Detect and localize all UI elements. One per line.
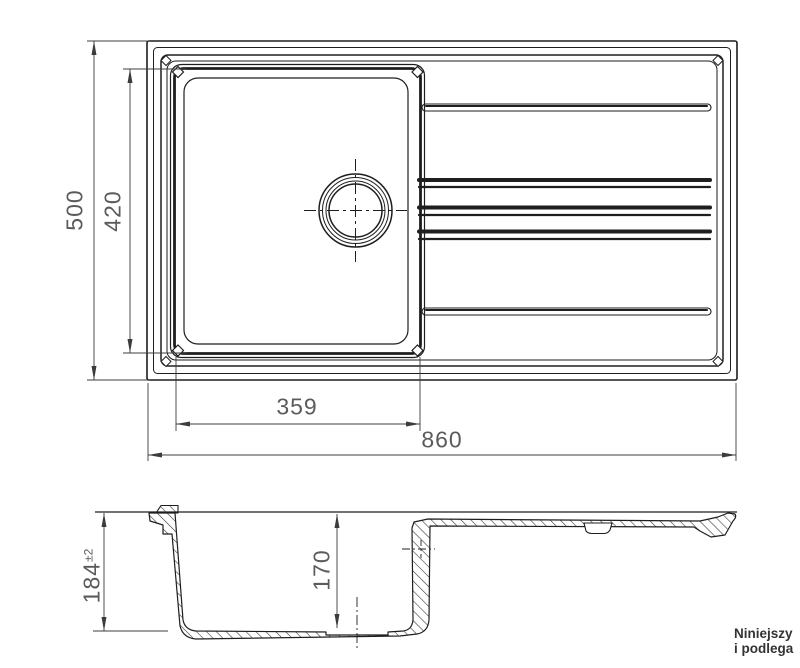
dim-359-arrow-left: [176, 422, 190, 427]
footer-note-line2: i podlega: [734, 641, 800, 656]
footer-note: Niniejszy i podlega: [734, 626, 800, 656]
dim-170-arrow-top: [335, 514, 340, 528]
dim-label-depth-total: 184±2: [81, 549, 104, 604]
dim-label-width-basin: 359: [276, 396, 317, 419]
drainer-grooves: [419, 104, 711, 315]
basin: [171, 65, 425, 358]
sink-technical-drawing-page: 500 420 359 860 184±2 170 Niniejszy i po…: [0, 0, 800, 668]
dim-500-arrow-bottom: [92, 366, 97, 380]
section-view: [95, 506, 737, 649]
dim-label-height-basin: 420: [102, 190, 125, 231]
top-view: [147, 41, 737, 380]
dim-420-arrow-bottom: [128, 339, 133, 353]
section-wall-profile: [149, 513, 736, 639]
technical-drawing-canvas: [0, 0, 800, 668]
dim-420-arrow-top: [128, 69, 133, 83]
rim-chamfer-bottom-right: [713, 357, 723, 367]
dim-170-arrow-bottom: [335, 614, 340, 628]
section-left-rim-lip: [156, 506, 178, 514]
dim-label-depth-basin: 170: [311, 549, 334, 590]
dim-860-arrow-right: [722, 453, 736, 458]
section-drip-groove: [584, 523, 612, 534]
dim-label-width-total: 860: [421, 429, 462, 452]
dim-359-arrow-right: [406, 422, 420, 427]
basin-outer-line: [171, 65, 425, 358]
dim-500-arrow-top: [92, 41, 97, 55]
section-view-dimensions: [93, 513, 340, 631]
dim-184-arrow-top: [102, 513, 107, 527]
dim-label-height-total: 500: [64, 189, 87, 230]
dim-420: [123, 69, 187, 353]
drain-hole: [304, 159, 407, 262]
rim-corner-chamfers: [161, 56, 723, 367]
sink-outer-edge-inner-line: [154, 48, 731, 374]
dim-860-arrow-left: [148, 453, 162, 458]
sink-rim-inner-edge: [161, 55, 723, 366]
footer-note-line1: Niniejszy: [734, 626, 800, 641]
dim-170: [335, 514, 340, 628]
dim-label-depth-total-value: 184: [79, 562, 105, 603]
sink-outer-edge: [147, 41, 737, 380]
dim-184-arrow-bottom: [102, 617, 107, 631]
rim-chamfer-bottom-left: [161, 357, 171, 367]
dim-label-depth-tolerance: ±2: [82, 549, 96, 562]
